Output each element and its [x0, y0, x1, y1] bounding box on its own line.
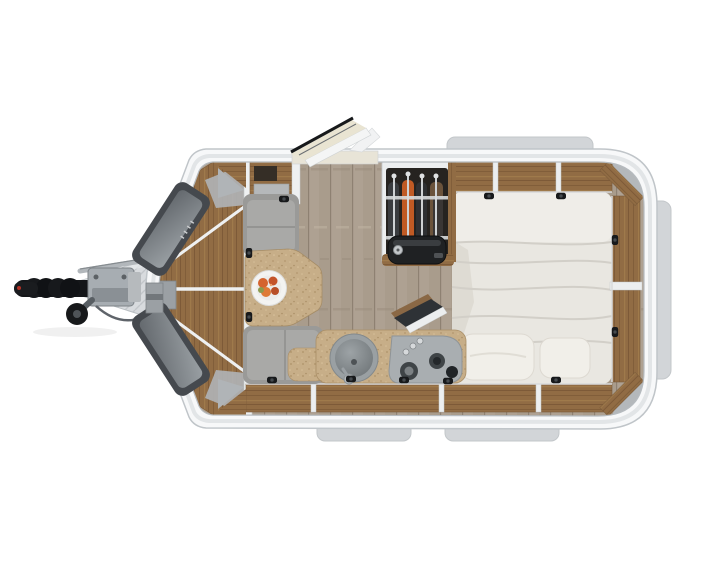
cabinet-cubby [254, 166, 277, 181]
wardrobe-rail-upper [386, 196, 448, 200]
coupler-red-dot [17, 286, 21, 290]
storage-compartments-top [452, 162, 612, 192]
duffel-bag [388, 236, 446, 264]
storage-compartments-bottom [246, 384, 612, 412]
interior [155, 158, 650, 422]
storage-compartments-right [610, 196, 642, 382]
pillow-right [540, 338, 590, 378]
trailer-floorplan-image [0, 0, 709, 561]
wardrobe [382, 160, 456, 266]
floorplan-svg [0, 0, 709, 561]
fruit-plate [252, 271, 287, 306]
nose-window-hinge-band [146, 294, 163, 300]
bed [452, 192, 612, 384]
